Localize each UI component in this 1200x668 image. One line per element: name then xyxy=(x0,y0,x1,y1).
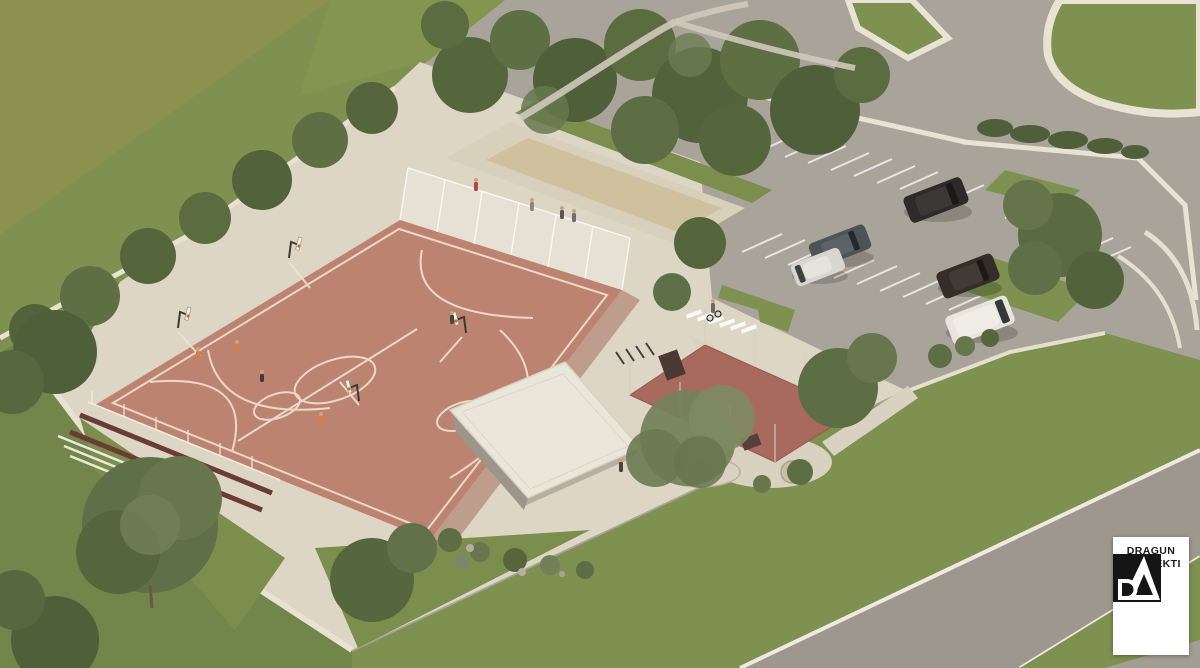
plaza-visitor xyxy=(619,458,623,472)
tree-parking-west-2 xyxy=(653,273,691,311)
tree-east-gym-2 xyxy=(847,333,897,383)
tree-south-path-2 xyxy=(387,523,437,573)
tree-parking-west xyxy=(674,217,726,269)
rendering-canvas: DRAGUN ARHITEKTI xyxy=(0,0,1200,668)
logo-monogram-icon xyxy=(1113,554,1161,602)
architect-logo-card: DRAGUN ARHITEKTI xyxy=(1113,537,1189,655)
scene xyxy=(0,0,1200,668)
